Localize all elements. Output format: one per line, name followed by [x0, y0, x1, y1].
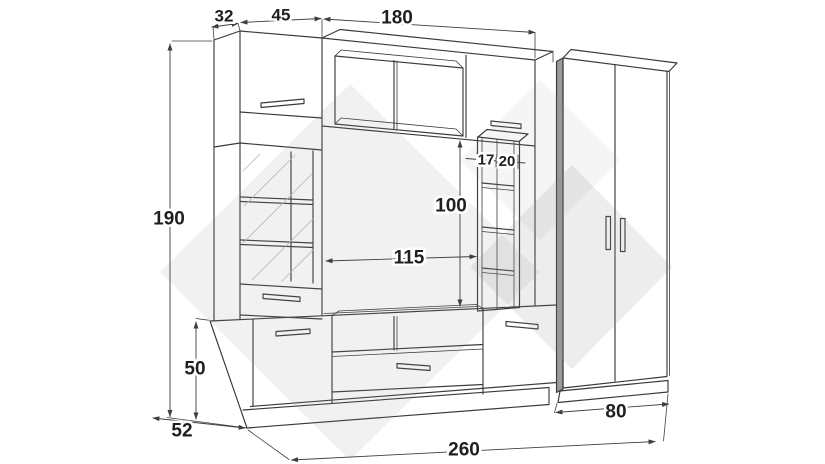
wardrobe-plinth — [558, 381, 668, 403]
furniture-dimension-drawing: 32 45 180 190 50 52 260 80 115 100 17 20 — [0, 0, 825, 464]
dim-label-base-height: 50 — [184, 359, 205, 380]
dim-label-total-height: 190 — [153, 209, 185, 230]
dim-line-bridge-width — [324, 19, 535, 33]
dim-label-wardrobe-width: 80 — [605, 402, 626, 423]
opening-top-edge — [335, 56, 463, 68]
dim-label-shelf-depth: 17 — [478, 152, 495, 169]
dim-label-bridge-width: 180 — [381, 8, 413, 29]
display-cabinet-top-edge — [214, 31, 322, 40]
dim-label-top-door-width: 45 — [272, 6, 291, 25]
dim-label-top-depth: 32 — [215, 7, 234, 26]
watermark-pattern — [160, 80, 672, 460]
dim-label-niche-height: 100 — [435, 196, 467, 217]
wardrobe-plinth-left — [558, 391, 560, 403]
upper-door-handle — [261, 99, 304, 108]
dim-label-base-depth: 52 — [171, 421, 192, 442]
dim-label-total-width: 260 — [448, 440, 480, 461]
wardrobe-top-face — [563, 50, 677, 72]
opening-interior-top — [335, 50, 463, 68]
dim-label-shelf-width: 20 — [499, 153, 516, 170]
dim-label-niche-width: 115 — [394, 248, 425, 269]
upper-door-bottom-edge — [240, 112, 322, 118]
drawing-canvas: 32 45 180 190 50 52 260 80 115 100 17 20 — [0, 0, 825, 464]
bridge-top-face — [322, 30, 553, 61]
dim-line-base-depth — [153, 418, 245, 428]
